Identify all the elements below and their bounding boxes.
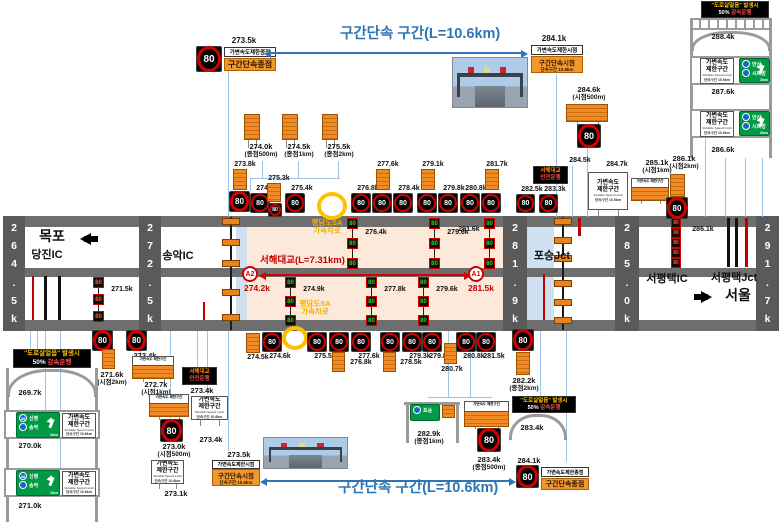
speed-80-sign: 80 (229, 191, 250, 212)
sign-post (219, 420, 220, 426)
vsl-display-sign (102, 349, 115, 369)
vsl-zone-sign: 가변속도제한구간Variable Speed Limit단속구간 10.6km (62, 471, 96, 496)
speed-80-sign: 80 (516, 194, 535, 213)
road-label-dangjin-ic: 당진IC (24, 249, 70, 261)
distance-label: 271.0k (10, 502, 50, 510)
milestone-264-5k: 264.5k (3, 216, 25, 331)
section-end-speed-sign: 80 (196, 46, 222, 72)
road-label-seopyeongtaek-ic: 서평택IC (636, 273, 698, 285)
distance-label: 283.4k (513, 424, 551, 432)
connector-line (428, 397, 492, 398)
gantry-signal-bar (554, 237, 572, 244)
sa-ramp-loop-bottom (282, 326, 308, 350)
vsl-display-sign (244, 114, 260, 140)
speed-80-sign: 80 (577, 124, 601, 148)
vsl-display-sign (246, 333, 260, 353)
lane-closure-tick (745, 218, 748, 267)
black-ice-warning-sign-topright: "도로살얼음" 발생시50% 감속운행 (701, 1, 769, 18)
seoul-right-arrow (694, 291, 718, 303)
speed-80-sign: 80 (477, 428, 501, 452)
bridge-sa-label-bottom: 행담도SA가속차로 (292, 300, 338, 317)
speed-enforcement-diagram: 264.5k272.5k281.9k285.0k291.7k목포당진IC송악IC… (0, 0, 779, 522)
gantry-signal-bar (222, 218, 240, 225)
distance-label: 280.7k (435, 366, 469, 374)
speed-80-sign: 80 (402, 332, 422, 352)
lane-closure-tick (58, 276, 61, 320)
speed-80-sign: 80 (351, 332, 371, 352)
lane-closure-tick (735, 218, 738, 267)
exit-guide-sign: 안산시화방2km (739, 58, 770, 83)
speed-80-sign: 80 (372, 193, 392, 213)
lane-closure-tick (44, 276, 47, 320)
black-ice-warning-sign-right: "도로살얼음" 발생시50% 감속운행 (512, 396, 576, 413)
speed-80-sign: 80 (329, 332, 349, 352)
vsl-start-label-bottom: 가변속도제한시점 (212, 460, 260, 469)
mini-80-sign: 80 (93, 311, 104, 322)
connector-line (30, 331, 31, 349)
vsl-combo-sign: 가변속도 제한구간 (132, 356, 174, 376)
distance-label: 274.9k (297, 286, 331, 294)
connector-line (197, 331, 198, 368)
vsl-display-sign (282, 114, 298, 140)
speed-80-sign: 80 (351, 193, 371, 213)
section-control-end-label: 구간단속종점 (224, 58, 276, 71)
distance-label: 281.7k (478, 161, 516, 169)
sign-post (598, 210, 599, 217)
camera-point-a2: A2 (242, 266, 258, 282)
speed-80-sign: 80 (393, 193, 413, 213)
speed-80-sign: 80 (438, 193, 458, 213)
distance-label: 273.0k(시점500m) (151, 443, 197, 458)
mini-80-sign: 80 (671, 238, 681, 248)
distance-label: 270.0k (10, 442, 50, 450)
mini-80-sign: 80 (671, 218, 681, 228)
vsl-display-sign (233, 169, 247, 190)
distance-label: 284.5k (561, 157, 599, 165)
road-label-poseung-jct: 포승Jct (526, 250, 578, 262)
distance-label: 275.5k(종점2km) (317, 143, 361, 158)
road-strip-bottom (3, 320, 779, 331)
seohae-bridge-safety-led: 서해대교안전운행 (182, 367, 217, 385)
distance-label: 277.6k (369, 161, 407, 169)
distance-label: 283.4k(종점500m) (464, 456, 514, 471)
section-title-top: 구간단속 구간(L=10.6km) (340, 27, 490, 43)
mokpo-left-arrow (74, 233, 98, 245)
distance-label: 286.1k (686, 226, 720, 234)
distance-label: 273.5k (224, 37, 264, 46)
speed-80-sign: 80 (512, 329, 534, 351)
road-strip-top (3, 216, 779, 227)
exit-guide-sign: 안산시화방2km (739, 111, 770, 136)
gantry-signal-bar (222, 239, 240, 246)
overpass-deck (690, 18, 772, 30)
seohae-bridge-safety-led: 서해대교안전운행 (533, 166, 568, 184)
road-label-seopyeongtaek-jct: 서평택Jct (702, 272, 766, 284)
connector-line (448, 331, 449, 398)
speed-80-sign: 80 (380, 332, 400, 352)
distance-label: 275.4k (283, 185, 321, 193)
section-title-bottom: 구간단속 구간(L=10.6km) (338, 481, 488, 497)
vsl-zone-sign: 가변속도제한구간Variable Speed Limit단속구간 10.6km (151, 460, 184, 484)
bridge-sa-label-top: 행담도SA가속차로 (304, 219, 350, 236)
vsl-start-label-top: 가변속도제한시점 (531, 45, 583, 55)
vsl-combo-sign: 가변속도 제한구간 (464, 401, 509, 424)
camera-a1-distance: 281.5k (462, 284, 500, 293)
distance-label: 273.5k (220, 451, 258, 459)
speed-80-sign: 80 (307, 332, 327, 352)
section-control-start-label-top: 구간단속시점단속구간 10.6km (531, 56, 583, 73)
connector-line (745, 158, 746, 217)
distance-label: 282.2k(종점2km) (501, 377, 547, 392)
distance-label: 281.5k (475, 353, 513, 361)
distance-label: 277.8k (378, 286, 412, 294)
sign-post (200, 420, 201, 426)
connector-line (762, 158, 763, 217)
vsl-display-sign (516, 352, 530, 375)
vsl-combo-sign: 가변속도 제한구간 (631, 178, 669, 198)
distance-label: 273.4k (193, 436, 229, 444)
sign-post (159, 484, 160, 489)
distance-label: 283.3k (536, 186, 574, 194)
speed-80-sign: 80 (160, 419, 183, 442)
vsl-zone-sign-large: 가변속도제한구간Variable Speed Limit단속구간 10.6km (588, 172, 628, 210)
gantry-signal-bar (554, 218, 572, 225)
speed-80-sign: 80 (476, 332, 496, 352)
speed-80-sign: 80 (666, 197, 688, 219)
distance-label: 279.6k (430, 286, 464, 294)
distance-label: 273.1k (158, 490, 194, 498)
distance-label: 276.4k (359, 229, 393, 237)
vsl-zone-sign: 가변속도제한구간Variable Speed Limit단속구간 10.6km (700, 58, 734, 84)
speed-80-sign: 80 (285, 193, 305, 213)
mini-80-sign: 80 (484, 238, 495, 249)
distance-label: 284.1k (533, 35, 575, 44)
vsl-display-sign (322, 114, 338, 140)
speed-80-sign: 80 (456, 332, 476, 352)
speed-80-sign: 80 (481, 193, 501, 213)
vsl-display-sign (267, 183, 281, 202)
distance-label: 284.7k (598, 161, 636, 169)
exit-guide-sign-sinpyeong-songak: 38신평송악2km (16, 412, 60, 438)
section-control-end-label-bottom: 구간단속종점 (541, 478, 589, 490)
gantry-signal-bar (222, 260, 240, 267)
enforcement-gantry-photo-bottom (263, 437, 348, 469)
bridge-title: 서해대교(L=7.31km) (260, 256, 344, 266)
vsl-display-sign (442, 405, 455, 418)
distance-label: 281.6k (452, 226, 486, 234)
milestone-281-9k: 281.9k (503, 216, 527, 331)
vsl-combo-sign: 가변속도 제한구간 (149, 394, 189, 414)
camera-point-a1: A1 (468, 266, 484, 282)
mini-80-sign: 80 (347, 218, 358, 229)
sa-ramp-loop-top (317, 192, 347, 220)
vsl-zone-sign: 가변속도제한구간Variable Speed Limit단속구간 10.6km (62, 413, 96, 438)
distance-label: 284.6k(시점500m) (566, 86, 612, 101)
mini-80-sign: 80 (418, 315, 429, 326)
mini-80-sign: 80 (429, 218, 440, 229)
road-label-mokpo: 목포 (32, 229, 72, 244)
vsl-zone-sign: 가변속도제한구간Variable Speed Limit단속구간 10.6km (700, 111, 734, 137)
camera-a2-distance: 274.2k (238, 284, 276, 293)
sign-post (618, 210, 619, 217)
bridge-span-arrow (261, 271, 469, 281)
speed-80-sign: 80 (126, 330, 147, 351)
mini-80-sign: 80 (671, 248, 681, 258)
mini-80-sign: 80 (671, 258, 681, 268)
distance-label: 275.3k (260, 175, 298, 183)
vsl-display-sign (485, 169, 499, 190)
gantry-signal-bar (554, 317, 572, 324)
road-label-songak-ic: 송악IC (155, 250, 201, 262)
distance-label: 279.1k (414, 161, 452, 169)
lane-closure-tick (578, 218, 581, 236)
connector-line (725, 158, 726, 217)
lane-closure-tick (543, 274, 545, 320)
speed-80-sign: 80 (92, 330, 113, 351)
road-label-seoul: 서울 (720, 288, 756, 303)
mini-80-sign: 80 (347, 238, 358, 249)
gantry-signal-bar (554, 280, 572, 287)
mini-80-sign: 80 (418, 296, 429, 307)
mini-80-sign: 80 (347, 258, 358, 269)
exit-guide-sign: 포승 (410, 404, 440, 421)
vsl-display-sign-wide (566, 104, 608, 122)
vsl-display-sign (421, 169, 435, 190)
gantry-mast (562, 217, 564, 330)
exit-guide-sign-sinpyeong-songak: 38신평송악1km (16, 470, 60, 496)
distance-label: 274.5k(종점1km) (277, 143, 321, 158)
speed-80-sign: 80 (417, 193, 437, 213)
distance-label: 284.1k (510, 457, 548, 465)
vsl-display-sign (670, 174, 685, 197)
mini-80-sign: 80 (93, 294, 104, 305)
connector-line (228, 331, 229, 451)
distance-label: 282.9k(종점1km) (405, 430, 453, 445)
mini-80-sign: 80 (484, 258, 495, 269)
mini-80-sign: 80 (93, 277, 104, 288)
speed-80-sign: 80 (539, 194, 558, 213)
speed-80-sign: 80 (268, 203, 282, 217)
mini-80-sign: 80 (285, 296, 296, 307)
mini-80-sign: 80 (285, 315, 296, 326)
mini-80-sign: 80 (671, 228, 681, 238)
distance-label: 273.8k (226, 161, 264, 169)
section-control-start-label-bottom: 구간단속시점단속구간 10.6km (212, 469, 260, 486)
vsl-zone-sign: 가변속도제한구간Variable Speed Limit단속구간 10.6km (191, 396, 228, 420)
mini-80-sign: 80 (366, 315, 377, 326)
vsl-display-sign (376, 169, 390, 190)
black-ice-warning-sign-left: "도로살얼음" 발생시50% 감속운행 (13, 349, 91, 368)
distance-label: 274.6k (261, 353, 299, 361)
distance-label: 288.4k (703, 33, 743, 41)
milestone-272-5k: 272.5k (139, 216, 161, 331)
speed-80-sign: 80 (460, 193, 480, 213)
distance-label: 286.1k(시점2km) (660, 155, 708, 170)
distance-label: 269.7k (10, 389, 50, 397)
vsl-end-label-bottom: 가변속도제한종점 (541, 467, 589, 477)
connector-line (298, 161, 299, 178)
lane-closure-tick (727, 218, 730, 267)
distance-label: 273.4k (184, 387, 220, 395)
lane-closure-tick (32, 276, 34, 320)
connector-line (338, 161, 339, 178)
distance-label: 286.6k (703, 146, 743, 154)
mini-80-sign: 80 (429, 258, 440, 269)
enforcement-gantry-photo-top (452, 57, 528, 108)
distance-label: 271.5k (105, 286, 139, 294)
mini-80-sign: 80 (429, 238, 440, 249)
speed-80-sign: 80 (262, 332, 282, 352)
distance-label: 287.6k (703, 88, 743, 96)
gantry-signal-bar (554, 299, 572, 306)
gantry-rail (456, 405, 459, 443)
gantry-signal-bar (222, 314, 240, 321)
lane-closure-tick (203, 302, 205, 320)
section-end-speed-sign-bottom: 80 (516, 465, 539, 488)
speed-80-sign: 80 (422, 332, 442, 352)
mini-80-sign: 80 (366, 296, 377, 307)
